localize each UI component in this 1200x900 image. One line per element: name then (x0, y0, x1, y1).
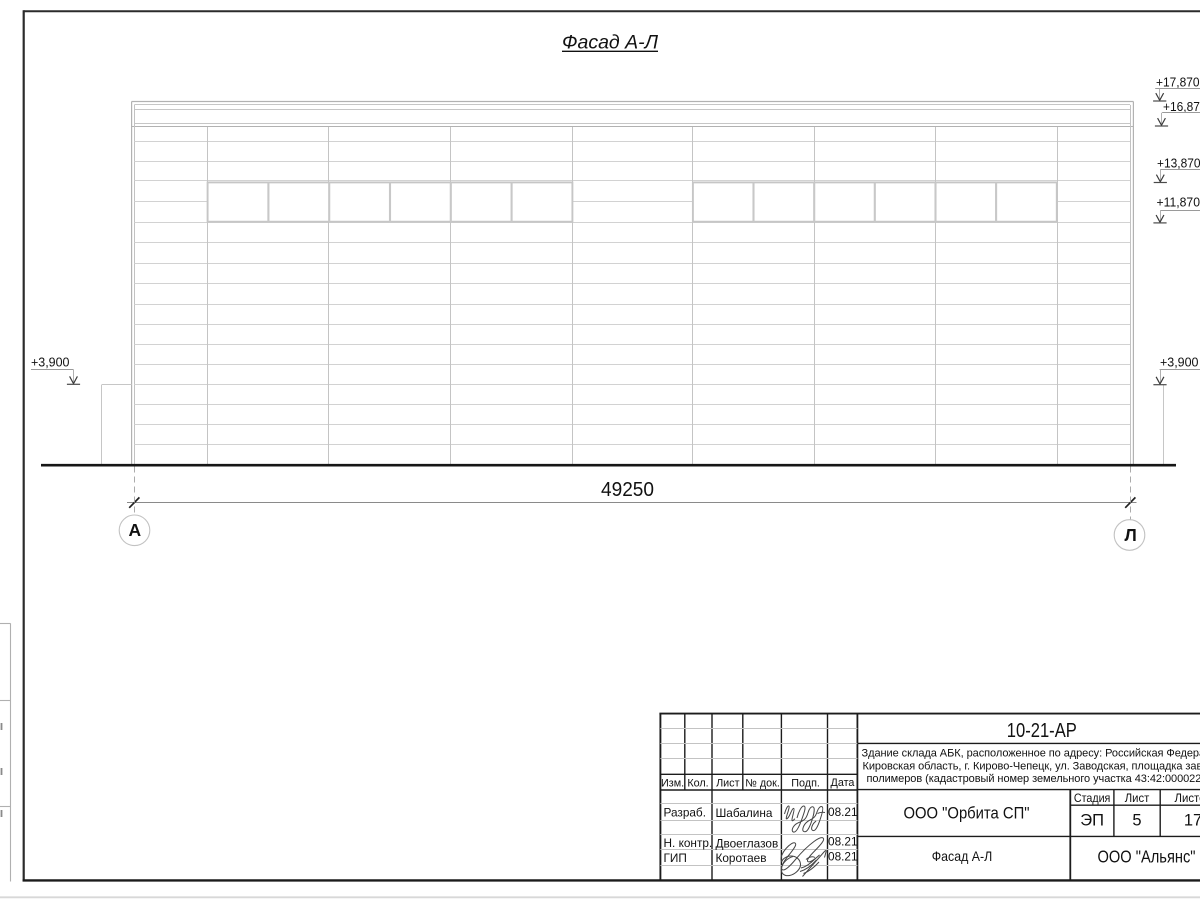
svg-text:+16,870: +16,870 (1163, 99, 1200, 114)
svg-text:5: 5 (1132, 811, 1141, 829)
svg-text:ООО "Орбита СП": ООО "Орбита СП" (904, 804, 1030, 823)
svg-text:Фасад А-Л: Фасад А-Л (932, 849, 993, 864)
svg-text:Н. контр.: Н. контр. (664, 836, 713, 850)
svg-text:ООО "Альянс": ООО "Альянс" (1098, 847, 1196, 867)
svg-text:ГИП: ГИП (664, 851, 687, 865)
svg-text:+3,900: +3,900 (31, 355, 70, 370)
svg-text:Изм.: Изм. (661, 778, 684, 790)
svg-text:Лист: Лист (716, 778, 740, 790)
svg-text:Дата: Дата (831, 777, 855, 789)
svg-text:+13,870: +13,870 (1157, 155, 1200, 170)
svg-text:Шабалина: Шабалина (716, 806, 773, 820)
svg-text:полимеров (кадастровый номер з: полимеров (кадастровый номер земельного … (867, 773, 1200, 785)
svg-text:17: 17 (1184, 811, 1200, 829)
svg-text:Здание склада АБК, расположенн: Здание склада АБК, расположенное по адре… (862, 748, 1200, 760)
svg-text:+11,870: +11,870 (1157, 194, 1200, 209)
svg-text:А: А (128, 520, 141, 540)
svg-text:08.21: 08.21 (828, 850, 858, 864)
svg-text:Коротаев: Коротаев (716, 851, 767, 865)
svg-text:Фасад А-Л: Фасад А-Л (562, 32, 659, 54)
svg-text:Кол.: Кол. (687, 778, 708, 790)
svg-text:49250: 49250 (601, 479, 654, 501)
svg-text:Разраб.: Разраб. (664, 806, 706, 820)
svg-text:ЭП: ЭП (1080, 811, 1104, 829)
svg-text:№ док.: № док. (745, 778, 780, 790)
svg-text:+3,900: +3,900 (1160, 355, 1199, 370)
svg-text:Двоеглазов: Двоеглазов (716, 836, 779, 850)
svg-text:+17,870: +17,870 (1156, 74, 1200, 89)
svg-text:Подп.: Подп. (791, 778, 820, 790)
svg-text:Стадия: Стадия (1074, 791, 1111, 805)
svg-text:10-21-АР: 10-21-АР (1007, 719, 1077, 742)
svg-text:08.21: 08.21 (828, 805, 858, 819)
svg-text:08.21: 08.21 (828, 835, 858, 849)
svg-text:Листов: Листов (1175, 791, 1200, 805)
svg-text:Лист: Лист (1125, 791, 1150, 805)
svg-text:Л: Л (1124, 525, 1136, 545)
svg-text:Кировская область, г. Кирово-Ч: Кировская область, г. Кирово-Чепецк, ул.… (863, 760, 1200, 772)
